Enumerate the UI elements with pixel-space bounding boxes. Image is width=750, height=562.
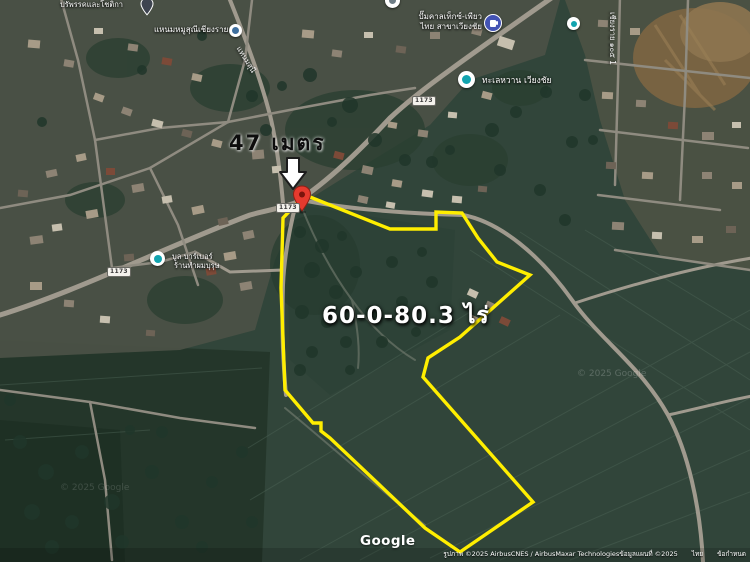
fuel-pump-icon: [490, 20, 496, 27]
area-annotation: 60-0-80.3 ไร่: [322, 298, 490, 334]
small-poi-icon[interactable]: [567, 17, 580, 30]
imagery-watermark: © 2025 Google: [577, 369, 646, 379]
terms-link[interactable]: ข้อกำหนด: [717, 549, 746, 559]
map-canvas[interactable]: ปรัพรรคและโชติกา แหนมหมูสุณีเชียงราย ปั๊…: [0, 0, 750, 562]
frontage-annotation: 47 เมตร: [229, 127, 325, 160]
barber-poi-icon[interactable]: [150, 251, 165, 266]
talay-poi-icon[interactable]: [458, 71, 475, 88]
poi-label-nham-shop: แหนมหมูสุณีเชียงราย: [154, 25, 228, 35]
satellite-basemap: [0, 0, 750, 562]
poi-label-gas-line2: ไทย สาขาเวียงชัย: [410, 22, 482, 32]
gas-station-poi-icon[interactable]: [484, 14, 502, 32]
route-shield-1173: 1173: [107, 267, 131, 277]
nham-shop-poi-icon[interactable]: [229, 24, 242, 37]
road-name-vertical: เชียงราย ๑๐๕ 1: [606, 12, 618, 65]
poi-label-talay: ทะเลหวาน เวียงชัย: [482, 76, 552, 86]
attribution-text: รูปภาพ ©2025 AirbusCNES / AirbusMaxar Te…: [443, 549, 677, 559]
poi-label-resort: ปรัพรรคและโชติกา: [60, 0, 123, 9]
poi-label-barber-line1: บูล บาร์เบอร์: [172, 252, 213, 261]
map-attribution-bar: รูปภาพ ©2025 AirbusCNES / AirbusMaxar Te…: [443, 549, 746, 559]
poi-label-gas-line1: ปั๊มคาลเท็กซ์-เพียว: [410, 12, 482, 22]
route-shield-1173: 1173: [412, 96, 436, 106]
route-shield-1173: 1173: [276, 203, 300, 213]
country-link[interactable]: ไทย: [692, 549, 703, 559]
poi-label-barber-line2: ร้านทำผมบุรุษ: [174, 261, 220, 270]
google-logo[interactable]: Google: [360, 533, 415, 549]
imagery-watermark: © 2025 Google: [60, 483, 129, 493]
